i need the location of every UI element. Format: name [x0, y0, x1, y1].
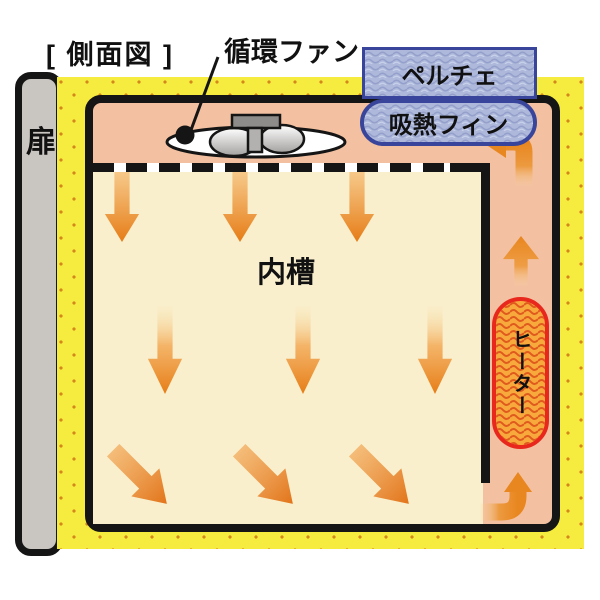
heater-label: ヒーター [506, 329, 535, 417]
airflow-arrow-turn-up [478, 468, 540, 526]
airflow-arrow-down [338, 172, 376, 242]
airflow-arrow-down [284, 306, 322, 394]
airflow-arrow-up [502, 236, 540, 286]
airflow-arrow-down [416, 306, 454, 394]
circulation-fan-label: 循環ファン [224, 30, 359, 69]
airflow-arrow-down [103, 172, 141, 242]
peltier-label: ペルチェ [402, 56, 498, 91]
heat-absorb-fin-label: 吸熱フィン [389, 105, 509, 140]
peltier-box: ペルチェ [362, 47, 537, 99]
heat-absorb-fin-box: 吸熱フィン [360, 99, 537, 146]
airflow-arrow-down [221, 172, 259, 242]
fan-leader-line [184, 52, 224, 134]
inner-wall-right [481, 163, 490, 483]
diagram-incubator-side-view: 扉 [ 側面図 ] 循環ファン 内槽 ペルチェ [0, 0, 600, 600]
heater-box: ヒーター [492, 297, 549, 449]
door-label: 扉 [20, 128, 62, 158]
airflow-arrow-down [146, 306, 184, 394]
view-title: [ 側面図 ] [46, 33, 174, 72]
inner-tank-label: 内槽 [257, 249, 315, 291]
